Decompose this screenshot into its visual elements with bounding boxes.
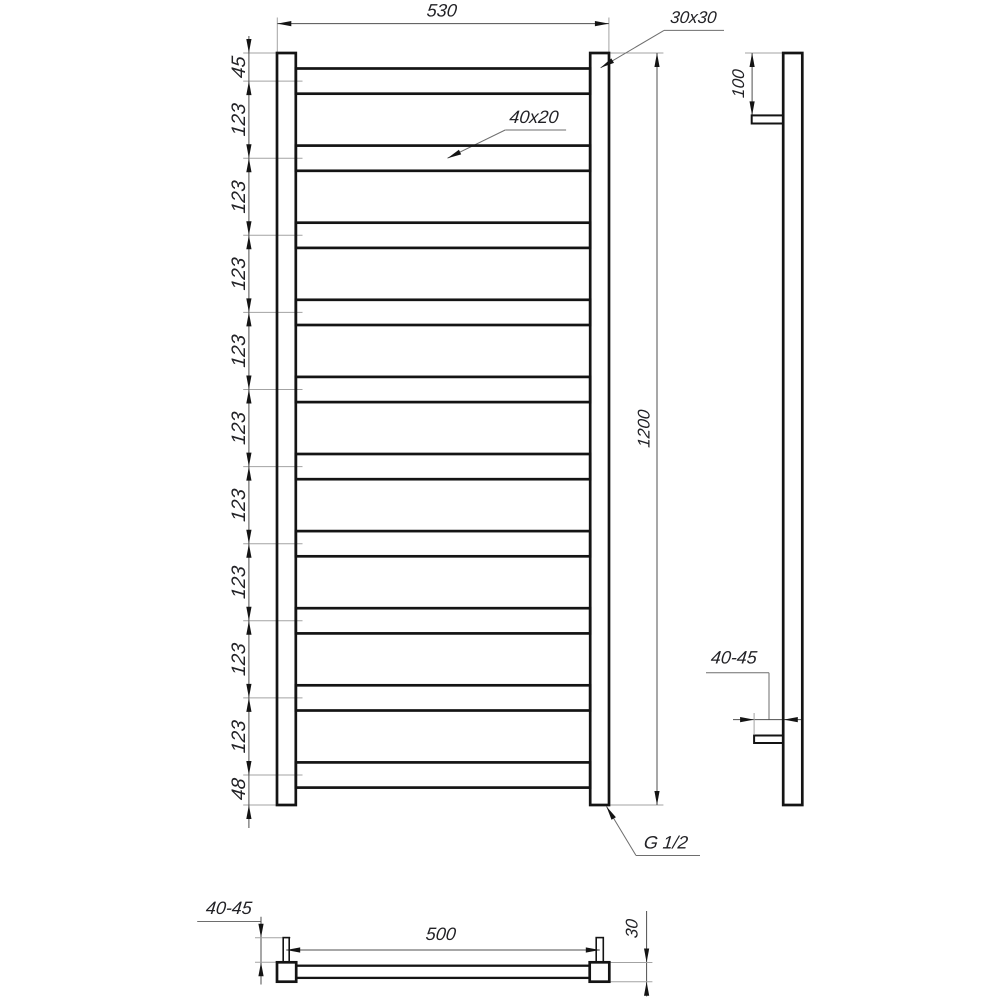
svg-text:123: 123: [228, 488, 250, 523]
svg-text:123: 123: [228, 179, 250, 214]
svg-text:30: 30: [623, 918, 642, 939]
svg-text:123: 123: [228, 642, 250, 677]
svg-text:30x30: 30x30: [669, 8, 718, 27]
svg-text:123: 123: [228, 565, 250, 600]
svg-text:100: 100: [729, 68, 748, 99]
svg-text:123: 123: [228, 719, 250, 754]
svg-text:123: 123: [228, 333, 250, 368]
svg-text:123: 123: [228, 411, 250, 446]
svg-text:123: 123: [228, 256, 250, 291]
svg-text:123: 123: [228, 102, 250, 137]
svg-text:1200: 1200: [635, 408, 654, 448]
svg-text:40-45: 40-45: [710, 648, 759, 668]
svg-text:45: 45: [228, 55, 250, 79]
svg-text:40-45: 40-45: [205, 898, 254, 918]
svg-text:530: 530: [426, 1, 458, 21]
svg-text:48: 48: [228, 777, 250, 801]
svg-text:G 1/2: G 1/2: [643, 833, 689, 853]
svg-text:40x20: 40x20: [508, 107, 559, 127]
svg-text:500: 500: [425, 924, 457, 944]
